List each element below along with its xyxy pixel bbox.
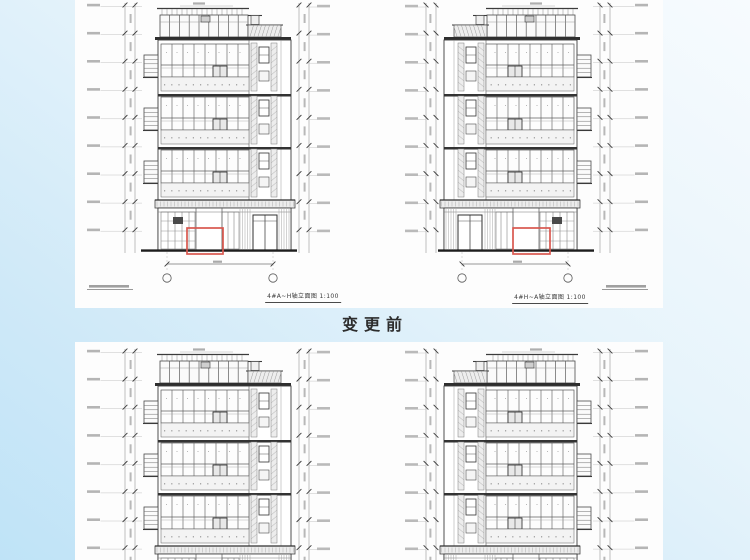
elevation-title-left: 4#A~H轴立面图 1:100 [265,293,341,303]
comparison-sheet: 4#A~H轴立面图 1:100 4#H~A轴立面图 1:100 变更前 [0,0,750,560]
before-change-caption: 变更前 [0,311,750,335]
elevation-drawing-top-right [390,2,650,302]
elevation-drawing-bottom-right [390,348,650,560]
elevation-drawing-bottom-left [85,348,345,560]
elevation-drawing-top-left [85,2,345,302]
elevation-title-right: 4#H~A轴立面图 1:100 [512,294,588,304]
